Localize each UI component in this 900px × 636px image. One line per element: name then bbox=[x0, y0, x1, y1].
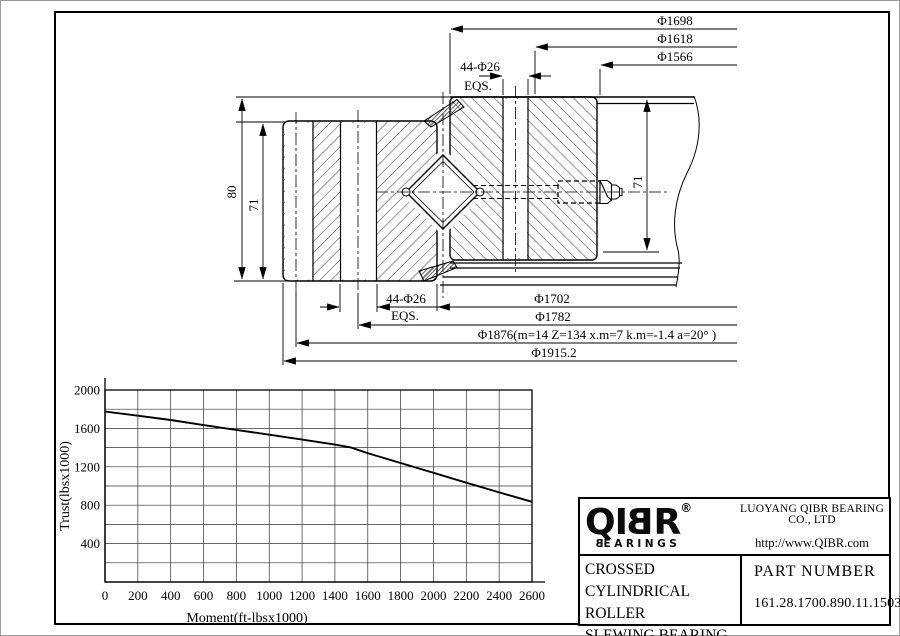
qibr-logo: QIBR® BEARINGS bbox=[580, 503, 737, 550]
x-tick-label: 2600 bbox=[519, 588, 545, 603]
dim-label-od-1702: Φ1702 bbox=[534, 291, 570, 306]
x-tick-label: 2000 bbox=[420, 588, 446, 603]
company-name: LUOYANG QIBR BEARING CO., LTD bbox=[737, 504, 887, 527]
qibr-logo-subtext: BEARINGS bbox=[585, 538, 737, 550]
dim-label-od-1782: Φ1782 bbox=[535, 309, 571, 324]
y-tick-label: 2000 bbox=[74, 383, 100, 398]
title-block: QIBR® BEARINGS LUOYANG QIBR BEARING CO.,… bbox=[578, 497, 891, 626]
dim-label-height-71-left: 71 bbox=[246, 199, 261, 212]
part-number-cell: PART NUMBER 161.28.1700.890.11.1503 bbox=[742, 556, 900, 624]
company-info: LUOYANG QIBR BEARING CO., LTD http://www… bbox=[737, 504, 889, 550]
y-axis-title: Trust(lbsx1000) bbox=[58, 441, 73, 531]
part-number-label: PART NUMBER bbox=[754, 563, 900, 581]
registered-trademark-icon: ® bbox=[680, 501, 692, 515]
x-tick-label: 1800 bbox=[388, 588, 414, 603]
dim-label-gear-1876: Φ1876(m=14 Z=134 x.m=7 k.m=-1.4 a=20° ) bbox=[478, 327, 716, 342]
y-tick-label: 800 bbox=[81, 498, 101, 513]
dim-label-od-1915: Φ1915.2 bbox=[531, 345, 576, 360]
datasheet-page: Φ1698 Φ1618 Φ1566 44-Φ26 EQS. 44-Φ26 EQS… bbox=[0, 0, 900, 636]
logo-letter: B bbox=[627, 507, 653, 539]
x-tick-label: 600 bbox=[194, 588, 214, 603]
logo-letter: I bbox=[615, 502, 627, 543]
product-line: SLEWING BEARING bbox=[585, 625, 735, 636]
x-axis-title: Moment(ft-lbsx1000) bbox=[186, 611, 308, 626]
x-tick-label: 2200 bbox=[453, 588, 479, 603]
x-tick-label: 1200 bbox=[289, 588, 315, 603]
y-tick-label: 1600 bbox=[74, 421, 100, 436]
qibr-logo-text: QIBR® bbox=[585, 503, 737, 539]
capacity-chart: 0200400600800100012001400160018002000220… bbox=[55, 376, 560, 626]
x-tick-label: 2400 bbox=[486, 588, 512, 603]
product-name-cell: CROSSED CYLINDRICAL ROLLER SLEWING BEARI… bbox=[580, 556, 742, 624]
dim-label-height-71-right: 71 bbox=[630, 176, 645, 189]
product-line: CROSSED CYLINDRICAL bbox=[585, 559, 735, 603]
title-block-header: QIBR® BEARINGS LUOYANG QIBR BEARING CO.,… bbox=[580, 499, 889, 556]
x-tick-label: 400 bbox=[161, 588, 181, 603]
dim-label-od-1698: Φ1698 bbox=[657, 13, 693, 28]
capacity-curve bbox=[105, 412, 532, 502]
y-tick-label: 400 bbox=[81, 536, 101, 551]
company-website: http://www.QIBR.com bbox=[737, 537, 887, 550]
logo-letter: Q bbox=[585, 502, 615, 543]
dim-label-od-1566: Φ1566 bbox=[657, 49, 693, 64]
dim-label-bolt-bottom: 44-Φ26 bbox=[386, 291, 426, 306]
part-number-value: 161.28.1700.890.11.1503 bbox=[754, 596, 900, 612]
x-tick-label: 800 bbox=[227, 588, 247, 603]
logo-letter: R bbox=[653, 502, 680, 543]
dim-label-bolt-top-eqs: EQS. bbox=[464, 78, 492, 93]
product-line: ROLLER bbox=[585, 603, 735, 625]
x-tick-label: 1000 bbox=[256, 588, 282, 603]
dim-label-bolt-bottom-eqs: EQS. bbox=[391, 308, 419, 323]
dim-label-height-80: 80 bbox=[224, 186, 239, 199]
x-tick-label: 1600 bbox=[355, 588, 381, 603]
logo-letter: B bbox=[592, 538, 604, 550]
x-tick-label: 1400 bbox=[322, 588, 348, 603]
x-tick-label: 0 bbox=[102, 588, 109, 603]
dim-label-od-1618: Φ1618 bbox=[657, 31, 693, 46]
x-tick-label: 200 bbox=[128, 588, 148, 603]
title-block-body: CROSSED CYLINDRICAL ROLLER SLEWING BEARI… bbox=[580, 556, 889, 624]
dim-label-bolt-top: 44-Φ26 bbox=[460, 59, 500, 74]
y-tick-label: 1200 bbox=[74, 459, 100, 474]
cross-section-drawing: Φ1698 Φ1618 Φ1566 44-Φ26 EQS. 44-Φ26 EQS… bbox=[0, 0, 900, 380]
